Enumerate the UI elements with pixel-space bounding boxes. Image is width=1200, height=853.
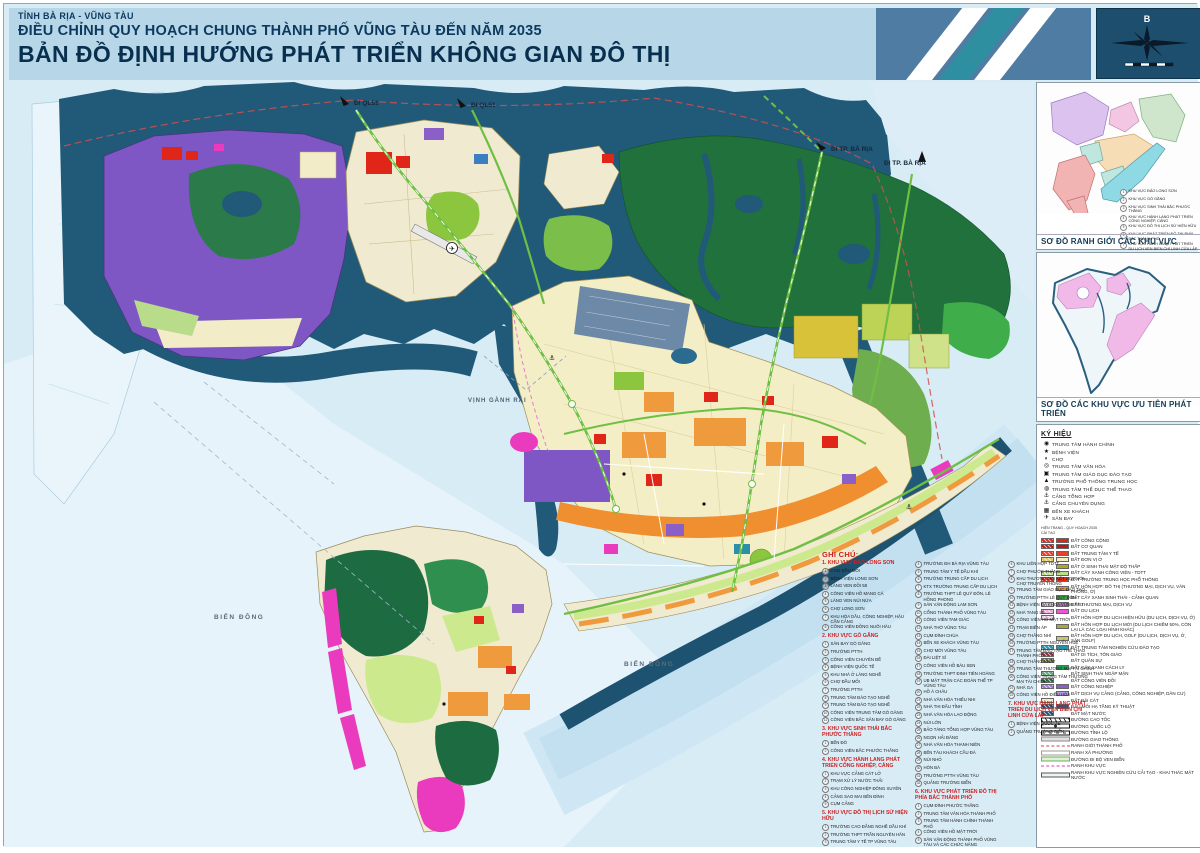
notes-item: 17 TRUNG TÂM ĐÀO TẠO THỂ THAO THÀNH PHỐ: [1008, 648, 1095, 658]
high-school-icon: ▲: [1041, 478, 1052, 485]
note-label: CHỢ MỚI VŨNG TÀU: [924, 648, 967, 653]
note-number: 15: [915, 648, 922, 655]
notes-section: 3. KHU VỰC SINH THÁI BẮC PHƯỚC THẮNG 1 B…: [822, 727, 909, 755]
note-number: 10: [822, 710, 829, 717]
note-label: TRƯỜNG CAO ĐẲNG NGHỀ DẦU KHÍ: [831, 824, 907, 829]
notes-item: 15 CHỢ THẮNG NHÌ: [1008, 633, 1095, 640]
notes-item-list: 1 BẾN ĐÒ 2 CÔNG VIÊN BẮC PHƯỚC THẮNG: [822, 740, 909, 755]
note-number: 18: [915, 671, 922, 678]
note-label: KHU VỰC CẢNG CÁT LỞ: [831, 771, 882, 776]
note-label: TRẠM XỬ LÝ NƯỚC THẢI: [831, 778, 883, 783]
notes-item: 22 CÔNG VIÊN HỒ ĐIỀU HÒA: [1008, 692, 1095, 699]
note-number: 10: [915, 610, 922, 617]
note-label: NHÀ THỜ VŨNG TÀU: [924, 625, 967, 630]
legend-number: 3: [1120, 205, 1127, 212]
notes-item: 2 TRẠM XỬ LÝ NƯỚC THẢI: [822, 778, 909, 785]
notes-section: 2. KHU VỰC GÒ GĂNG 1 SÂN BAY GÒ GĂNG 2 T…: [822, 634, 909, 724]
admin-center-icon: ◉: [1041, 441, 1052, 448]
note-label: BỆNH VIỆN QUỐC TẾ: [831, 664, 875, 669]
legend-col2: CẢI TẠO: [1041, 531, 1196, 536]
tip-tourism: [417, 777, 465, 832]
specialized-port-icon: ⚓: [1041, 500, 1052, 507]
note-label: HỒ Á CHÂU: [924, 689, 948, 694]
legend-column-headers: HIỆN TRẠNG - QUY HOẠCH 2035 CẢI TẠO: [1041, 526, 1196, 535]
note-number: 3: [822, 657, 829, 664]
notes-item: 1 CỤM ĐÌNH PHƯỚC THẮNG: [915, 803, 1002, 810]
note-number: 2: [822, 649, 829, 656]
note-label: CỤM CẢNG: [831, 801, 854, 806]
airport-icon: ✈: [449, 246, 455, 253]
symbol-item: ⚓ CẢNG TỔNG HỢP: [1041, 493, 1196, 500]
scale-bar: [1125, 63, 1173, 66]
note-number: 4: [822, 794, 829, 801]
note-label: NHÀ VĂN HÓA THANH NIÊN: [924, 742, 981, 747]
note-number: 2: [822, 748, 829, 755]
notes-item: 8 TRƯỜNG THPT LÊ QUÝ ĐÔN, LÊ HỒNG PHONG: [915, 591, 1002, 601]
note-label: CÔNG VIÊN HỒ BÀU SEN: [924, 663, 976, 668]
note-number: 8: [915, 591, 922, 598]
note-label: BẢO TÀNG TỔNG HỢP VŨNG TÀU: [924, 727, 994, 732]
note-number: 3: [822, 583, 829, 590]
notes-columns: 1. KHU VỰC ĐẢO LONG SƠN 1 CHỢ ĐẦU MỐI 2 …: [822, 561, 1002, 853]
note-label: NHÀ THI ĐẤU TỈNH: [924, 704, 963, 709]
notes-section-title: 4. KHU VỰC HÀNH LANG PHÁT TRIỂN CÔNG NGH…: [822, 758, 909, 770]
note-number: 5: [915, 837, 922, 844]
notes-item: 8 TRUNG TÂM ĐÀO TẠO NGHỀ: [822, 695, 909, 702]
legend-number: 1: [1120, 189, 1127, 196]
note-label: ĐÀI LIỆT SĨ: [924, 655, 947, 660]
inset-legend-item: 4 KHU VỰC HÀNH LANG PHÁT TRIỂN CÔNG NGHI…: [1120, 215, 1198, 224]
note-number: 4: [915, 829, 922, 836]
note-number: 4: [915, 561, 922, 568]
legend-item: ĐƯỜNG GIAO THÔNG: [1041, 737, 1196, 742]
note-number: 4: [822, 664, 829, 671]
note-number: 7: [915, 584, 922, 591]
note-number: 20: [1008, 674, 1015, 681]
note-label: BẾN ĐÒ: [831, 740, 847, 745]
legend-label: KHU VỰC SINH THÁI BẮC PHƯỚC THẮNG: [1129, 205, 1199, 214]
inset-priority-map: [1037, 253, 1200, 405]
note-number: 3: [822, 839, 829, 846]
notes-item: 2 CÔNG VIÊN BẮC PHƯỚC THẮNG: [822, 748, 909, 755]
legend-label: KHU VỰC GÒ GĂNG: [1129, 197, 1166, 201]
note-number: 6: [822, 606, 829, 613]
market-icon: ◐: [1041, 456, 1052, 463]
notes-item: 10 CỔNG THÀNH PHỐ VŨNG TÀU: [915, 610, 1002, 617]
notes-item: 11 CÔNG VIÊN BẮC SÂN BAY GÒ GĂNG: [822, 717, 909, 724]
notes-item: 20 HỒ Á CHÂU: [915, 689, 1002, 696]
note-number: 1: [822, 740, 829, 747]
notes-item: 3 KHU CÔNG NGHIỆP ĐÔNG XUYÊN: [822, 786, 909, 793]
road-label: ĐI TP. BÀ RỊA: [831, 144, 873, 153]
note-label: CHỢ THẮNG NHẤT: [1017, 659, 1056, 664]
notes-item: 18 CHỢ THẮNG NHẤT: [1008, 659, 1095, 666]
note-number: 3: [915, 818, 922, 825]
note-label: CÔNG VIÊN TRUNG TÂM GÒ GĂNG: [831, 710, 903, 715]
map-canvas: ✈ ⚓ ⚓ ĐI QL51 ĐI QL51 ĐI TP. BÀ RỊA ĐI T…: [3, 3, 1197, 846]
note-number: 22: [1008, 692, 1015, 699]
notes-item: 9 TRUNG TÂM ĐÀO TẠO NGHỀ: [822, 702, 909, 709]
symbol-label: TRUNG TÂM THỂ DỤC THỂ THAO: [1052, 487, 1132, 492]
mang-ca-lake: [222, 191, 262, 217]
note-number: 11: [915, 617, 922, 624]
symbol-item: ▣ TRUNG TÂM GIÁO DỤC ĐÀO TẠO: [1041, 471, 1196, 478]
port-icon: ⚓: [549, 355, 555, 362]
note-number: 13: [915, 633, 922, 640]
plan-title: ĐIỀU CHỈNH QUY HOẠCH CHUNG THÀNH PHỐ VŨN…: [18, 23, 878, 39]
note-label: CẢNG SAO MAI BẾN ĐÌNH: [831, 794, 884, 799]
note-label: SÂN VẬN ĐỘNG LAM SƠN: [924, 602, 978, 607]
legend-item: ĐẤT CÔNG CỘNG: [1041, 538, 1196, 543]
bus-station-icon: ▦: [1041, 508, 1052, 515]
note-label: TRUNG TÂM Y TẾ DẦU KHÍ: [924, 569, 979, 574]
note-label: CÔNG VIÊN TRUNG TÂM THƯƠNG MẠI TÀI CHÍNH: [1017, 674, 1096, 684]
symbol-label: TRUNG TÂM HÀNH CHÍNH: [1052, 442, 1115, 447]
notes-item: 1 BỆNH VIỆN QUỐC TẾ: [1008, 721, 1095, 728]
notes-section: 4. KHU VỰC HÀNH LANG PHÁT TRIỂN CÔNG NGH…: [822, 758, 909, 808]
swatch-existing: [1041, 544, 1054, 549]
notes-item: 7 CHỢ PHƯỚC THẮNG: [1008, 569, 1095, 576]
note-number: 10: [1008, 595, 1015, 602]
notes-item: 4 CÔNG VIÊN HỒ MẶT TRỜI: [915, 829, 1002, 836]
hospital-icon: ★: [1041, 449, 1052, 456]
notes-item: 9 TRUNG TÂM GIÁO DỤC ĐÀO TẠO: [1008, 587, 1095, 594]
note-number: 22: [915, 704, 922, 711]
legend-item: ĐẤT CƠ QUAN: [1041, 544, 1196, 549]
note-label: KHU NHÀ Ở LÀNG NGHỀ: [831, 672, 882, 677]
note-number: 9: [822, 702, 829, 709]
notes-section-title: 3. KHU VỰC SINH THÁI BẮC PHƯỚC THẮNG: [822, 727, 909, 739]
notes-item: 1 BẾN ĐÒ: [822, 740, 909, 747]
note-label: CÔNG VIÊN HỒ ĐIỀU HÒA: [1017, 692, 1071, 697]
note-label: HÒN BÀ: [924, 765, 940, 770]
notes-item: 6 CHỢ LONG SƠN: [822, 606, 909, 613]
road-label: ĐI QL51: [354, 100, 379, 107]
notes-title: GHI CHÚ:: [822, 550, 1002, 559]
note-number: 4: [822, 591, 829, 598]
culture-center-icon: ◎: [1041, 463, 1052, 470]
note-number: 7: [1008, 569, 1015, 576]
legend-item: RANH GIỚI THÀNH PHỐ: [1041, 743, 1196, 748]
general-port-icon: ⚓: [1041, 493, 1052, 500]
notes-item: 5 KHU NHÀ Ở LÀNG NGHỀ: [822, 672, 909, 679]
note-number: 8: [822, 624, 829, 631]
note-number: 2: [822, 778, 829, 785]
notes-item: 3 LÀNG VEN ĐỒI 58: [822, 583, 909, 590]
note-number: 17: [1008, 648, 1015, 655]
line-swatch: [1041, 765, 1070, 766]
planning-map-poster: { "header": { "line1": "TỈNH BÀ RỊA - VŨ…: [0, 0, 1200, 849]
note-label: LÀNG VEN NÚI NỨA: [831, 598, 872, 603]
note-number: 5: [822, 801, 829, 808]
note-label: SÂN BAY GÒ GĂNG: [831, 641, 871, 646]
note-number: 2: [1008, 729, 1015, 736]
note-number: 2: [915, 811, 922, 818]
note-number: 11: [1008, 602, 1015, 609]
legend-item: ĐƯỜNG ĐI BỘ VEN BIỂN: [1041, 757, 1196, 762]
note-label: CHỢ THẮNG NHÌ: [1017, 633, 1052, 638]
inset-legend-item: 2 KHU VỰC GÒ GĂNG: [1120, 197, 1198, 204]
note-label: TRUNG TÂM THƯƠNG MẠI TÀI CHÍNH: [1017, 666, 1095, 671]
notes-item: 15 CHỢ MỚI VŨNG TÀU: [915, 648, 1002, 655]
note-number: 8: [822, 695, 829, 702]
note-number: 20: [915, 689, 922, 696]
port-icon: ⚓: [906, 504, 912, 511]
note-label: KTX TRƯỜNG TRUNG CẤP DU LỊCH: [924, 584, 998, 589]
notes-item: 17 CÔNG VIÊN HỒ BÀU SEN: [915, 663, 1002, 670]
notes-item: 12 NHÀ TANG LỄ: [1008, 610, 1095, 617]
notes-item: 1 TRƯỜNG CAO ĐẲNG NGHỀ DẦU KHÍ: [822, 824, 909, 831]
notes-section: 7. KHU VỰC HÀNH LANG PHÁT TRIỂN DU LỊCH …: [1008, 702, 1095, 736]
legend-number: 4: [1120, 215, 1127, 222]
note-label: CÔNG VIÊN BẮC SÂN BAY GÒ GĂNG: [831, 717, 906, 722]
note-number: 6: [1008, 561, 1015, 568]
note-label: TRUNG TÂM Y TẾ TP VŨNG TÀU: [831, 839, 897, 844]
symbol-item: ◐ CHỢ: [1041, 456, 1196, 463]
note-number: 5: [822, 672, 829, 679]
line-swatch: [1041, 750, 1070, 755]
sports-center-icon: ◍: [1041, 486, 1052, 493]
note-label: TRƯỜNG PTTH: [831, 649, 863, 654]
note-number: 19: [915, 678, 922, 685]
province-title: TỈNH BÀ RỊA - VŨNG TÀU: [18, 11, 878, 21]
note-label: BẾN TÀU KHÁCH CẦU ĐÁ: [924, 750, 976, 755]
swatch-planned: [1056, 538, 1069, 543]
bay-label: VỊNH GÀNH RÁI: [468, 397, 527, 404]
note-number: 32: [915, 780, 922, 787]
note-label: NHÀ VĂN HÓA THIẾU NHI: [924, 697, 976, 702]
note-number: 28: [915, 750, 922, 757]
note-label: TRẠM BIẾN ÁP: [1017, 625, 1047, 630]
notes-section-title: 7. KHU VỰC HÀNH LANG PHÁT TRIỂN DU LỊCH …: [1008, 702, 1095, 720]
notes-item: 12 NHÀ THỜ VŨNG TÀU: [915, 625, 1002, 632]
notes-item: 32 QUẢNG TRƯỜNG BIỂN: [915, 780, 1002, 787]
note-label: BỆNH VIỆN LONG SƠN: [831, 576, 878, 581]
note-label: KHU THƯƠNG MẠI KẾT HỢP VỚI CHỢ TRUYỀN TH…: [1017, 576, 1096, 586]
note-number: 1: [1008, 721, 1015, 728]
notes-item: 2 TRUNG TÂM VĂN HÓA THÀNH PHỐ: [915, 811, 1002, 818]
symbol-item: ⚓ CẢNG CHUYÊN DỤNG: [1041, 500, 1196, 507]
notes-section-title: 5. KHU VỰC ĐÔ THỊ LỊCH SỬ HIỆN HỮU: [822, 811, 909, 823]
note-number: 19: [1008, 666, 1015, 673]
notes-item-list: 1 KHU VỰC CẢNG CÁT LỞ 2 TRẠM XỬ LÝ NƯỚC …: [822, 771, 909, 808]
notes-item: 16 ĐÀI LIỆT SĨ: [915, 655, 1002, 662]
note-label: TRUNG TÂM ĐÀO TẠO NGHỀ: [831, 702, 891, 707]
notes-item: 2 QUẢNG TRƯỜNG BIỂN: [1008, 729, 1095, 736]
note-label: BỆNH VIỆN ĐA KHOA VŨNG TÀU: [1017, 602, 1084, 607]
note-label: CÔNG VIÊN HỒ MẶT TRỜI: [924, 829, 978, 834]
note-number: 9: [915, 602, 922, 609]
symbol-label: SÂN BAY: [1052, 516, 1073, 521]
legend-label: KHU VỰC ĐÔ THỊ LỊCH SỬ HIỆN HỮU: [1129, 224, 1197, 228]
notes-section-title: 1. KHU VỰC ĐẢO LONG SƠN: [822, 561, 909, 567]
symbol-label: BẾN XE KHÁCH: [1052, 509, 1089, 514]
notes-item: 7 KHU HÓA DẦU, CÔNG NGHIỆP, HẬU CẦN CẢNG: [822, 614, 909, 624]
notes-item: 30 HÒN BÀ: [915, 765, 1002, 772]
inset-legend-item: 3 KHU VỰC SINH THÁI BẮC PHƯỚC THẮNG: [1120, 205, 1198, 214]
note-label: BẾN XE KHÁCH VŨNG TÀU: [924, 640, 979, 645]
notes-item: 3 TRUNG TÂM HÀNH CHÍNH THÀNH PHỐ: [915, 818, 1002, 828]
symbol-label: CHỢ: [1052, 457, 1063, 462]
legend-label: ĐƯỜNG ĐI BỘ VEN BIỂN: [1071, 757, 1124, 762]
notes-item: 5 SÂN VẬN ĐỘNG THÀNH PHỐ VŨNG TÀU VÀ CÁC…: [915, 837, 1002, 847]
map-notes: GHI CHÚ: 1. KHU VỰC ĐẢO LONG SƠN 1 CHỢ Đ…: [822, 550, 1002, 853]
notes-item: 4 CẢNG SAO MAI BẾN ĐÌNH: [822, 794, 909, 801]
symbol-item: ◍ TRUNG TÂM THỂ DỤC THỂ THAO: [1041, 485, 1196, 492]
notes-section: 1. KHU VỰC ĐẢO LONG SƠN 1 CHỢ ĐẦU MỐI 2 …: [822, 561, 909, 631]
note-label: TRUNG TÂM HÀNH CHÍNH THÀNH PHỐ: [924, 818, 1003, 828]
sao-mai-tourism: [510, 432, 538, 452]
notes-section-title: 2. KHU VỰC GÒ GĂNG: [822, 634, 909, 640]
symbol-label: CẢNG TỔNG HỢP: [1052, 494, 1095, 499]
note-label: QUẢNG TRƯỜNG BIỂN: [1017, 729, 1065, 734]
legend-label: ĐẤT CÔNG CỘNG: [1071, 538, 1109, 543]
note-number: 6: [822, 679, 829, 686]
note-label: KHU LIÊN HỢP TDTT: [1017, 561, 1060, 566]
symbol-item: ◉ TRUNG TÂM HÀNH CHÍNH: [1041, 441, 1196, 448]
note-label: CHỢ LONG SƠN: [831, 606, 865, 611]
north-label: B: [1144, 14, 1151, 24]
line-swatch: [1041, 737, 1070, 742]
note-label: TRƯỜNG PTTH VŨNG TÀU: [924, 773, 979, 778]
note-label: CÔNG VIÊN ĐỒNG NUÔI HÀU: [831, 624, 891, 629]
note-number: 17: [915, 663, 922, 670]
symbol-label: TRUNG TÂM GIÁO DỤC ĐÀO TẠO: [1052, 472, 1132, 477]
inset-legend-item: 5 KHU VỰC ĐÔ THỊ LỊCH SỬ HIỆN HỮU: [1120, 224, 1198, 231]
line-swatch: [1041, 746, 1070, 747]
note-number: 16: [915, 655, 922, 662]
note-number: 23: [915, 712, 922, 719]
note-label: CHỢ ĐẦU MỐI: [831, 679, 860, 684]
sao-mai-port: [537, 451, 561, 467]
legend-label: ĐƯỜNG GIAO THÔNG: [1071, 737, 1119, 742]
notes-item: 7 KTX TRƯỜNG TRUNG CẤP DU LỊCH: [915, 584, 1002, 591]
note-label: CỤM ĐÌNH CHÙA: [924, 633, 959, 638]
notes-item: 10 CÔNG VIÊN TRUNG TÂM GÒ GĂNG: [822, 710, 909, 717]
note-label: TRƯỜNG ĐH BÀ RỊA VŨNG TÀU: [924, 561, 989, 566]
note-label: CÔNG VIÊN HỒ MANG CÁ: [831, 591, 884, 596]
sea-label: BIỂN ĐÔNG: [624, 659, 674, 668]
legend-label: RANH XÃ PHƯỜNG: [1071, 750, 1113, 755]
notes-item: 26 NGỌN HẢI ĐĂNG: [915, 735, 1002, 742]
note-label: KHU HÓA DẦU, CÔNG NGHIỆP, HẬU CẦN CẢNG: [831, 614, 910, 624]
notes-item: 16 TRƯỜNG PTTH NGUYỄN HUỆ: [1008, 640, 1095, 647]
note-label: TRƯỜNG TRUNG CẤP DU LỊCH: [924, 576, 988, 581]
note-number: 11: [822, 717, 829, 724]
note-number: 1: [822, 824, 829, 831]
notes-item: 4 BỆNH VIỆN QUỐC TẾ: [822, 664, 909, 671]
note-number: 3: [822, 786, 829, 793]
inset-legend-item: 1 KHU VỰC ĐẢO LONG SƠN: [1120, 189, 1198, 196]
note-number: 13: [1008, 617, 1015, 624]
legend-label: KHU VỰC ĐẢO LONG SƠN: [1129, 189, 1177, 193]
note-number: 1: [822, 568, 829, 575]
notes-item: 24 NÚI LỚN: [915, 720, 1002, 727]
note-label: TRUNG TÂM ĐÀO TẠO NGHỀ: [831, 695, 891, 700]
note-label: TRUNG TÂM ĐÀO TẠO THỂ THAO THÀNH PHỐ: [1017, 648, 1096, 658]
notes-item: 14 BẾN XE KHÁCH VŨNG TÀU: [915, 640, 1002, 647]
note-label: TRƯỜNG THPT ĐINH TIÊN HOÀNG: [924, 671, 995, 676]
note-label: CÔNG VIÊN TAM GIÁC: [924, 617, 970, 622]
notes-item: 7 TRƯỜNG PTTH: [822, 687, 909, 694]
page-title: BẢN ĐỒ ĐỊNH HƯỚNG PHÁT TRIỂN KHÔNG GIAN …: [18, 41, 878, 68]
notes-item: 2 BỆNH VIỆN LONG SƠN: [822, 576, 909, 583]
swatch-planned: [1056, 551, 1069, 556]
note-number: 7: [822, 614, 829, 621]
note-number: 5: [915, 569, 922, 576]
note-number: 8: [1008, 576, 1015, 583]
note-label: SÂN VẬN ĐỘNG THÀNH PHỐ VŨNG TÀU VÀ CÁC C…: [924, 837, 1003, 847]
legend-label: RANH GIỚI THÀNH PHỐ: [1071, 743, 1123, 748]
symbol-label: CẢNG CHUYÊN DỤNG: [1052, 501, 1105, 506]
swatch-existing: [1041, 538, 1054, 543]
line-swatch: [1041, 772, 1070, 777]
note-number: 9: [1008, 587, 1015, 594]
symbol-item: ✈ SÂN BAY: [1041, 515, 1196, 522]
road-label: ĐI QL51: [471, 102, 496, 109]
notes-item: 11 BỆNH VIỆN ĐA KHOA VŨNG TÀU: [1008, 602, 1095, 609]
note-label: TRUNG TÂM GIÁO DỤC ĐÀO TẠO: [1017, 587, 1085, 592]
note-label: CHỢ ĐẦU MỐI: [831, 568, 860, 573]
swatch-existing: [1041, 551, 1054, 556]
note-number: 14: [915, 640, 922, 647]
note-label: NGỌN HẢI ĐĂNG: [924, 735, 959, 740]
notes-item: 6 KHU LIÊN HỢP TDTT: [1008, 561, 1095, 568]
notes-item: 21 NHÀ VĂN HÓA THIẾU NHI: [915, 697, 1002, 704]
note-label: KHU CÔNG NGHIỆP ĐÔNG XUYÊN: [831, 786, 902, 791]
line-swatch: [1041, 757, 1070, 762]
notes-item: 19 UB MẶT TRẬN CÁC ĐOÀN THỂ TP VŨNG TÀU: [915, 678, 1002, 688]
long-son-island: [104, 130, 352, 360]
note-label: TRƯỜNG PTTH LÊ QUÝ ĐÔN: [1017, 595, 1077, 600]
symbol-item: ▲ TRƯỜNG PHỔ THÔNG TRUNG HỌC: [1041, 478, 1196, 485]
symbol-item: ◎ TRUNG TÂM VĂN HÓA: [1041, 463, 1196, 470]
note-number: 24: [915, 720, 922, 727]
compass-rose-icon: [1111, 25, 1189, 61]
notes-item: 1 SÂN BAY GÒ GĂNG: [822, 641, 909, 648]
notes-item: 22 NHÀ THI ĐẤU TỈNH: [915, 704, 1002, 711]
notes-item: 21 NHÀ GA: [1008, 685, 1095, 692]
notes-item: 1 CHỢ ĐẦU MỐI: [822, 568, 909, 575]
symbols-title: KÝ HIỆU: [1041, 431, 1196, 438]
notes-item: 25 BẢO TÀNG TỔNG HỢP VŨNG TÀU: [915, 727, 1002, 734]
notes-item: 29 NÚI NHỎ: [915, 757, 1002, 764]
note-label: CÔNG VIÊN HỒ MẶT TRỜI: [1017, 617, 1071, 622]
notes-item: 8 KHU THƯƠNG MẠI KẾT HỢP VỚI CHỢ TRUYỀN …: [1008, 576, 1095, 586]
note-number: 15: [1008, 633, 1015, 640]
note-number: 26: [915, 735, 922, 742]
inset-boundaries-caption: SƠ ĐỒ RANH GIỚI CÁC KHU VỰC: [1037, 234, 1200, 249]
notes-item: 23 NHÀ VĂN HÓA LAO ĐỘNG: [915, 712, 1002, 719]
symbol-label: BỆNH VIỆN: [1052, 450, 1079, 455]
note-number: 21: [1008, 685, 1015, 692]
legend-item: RANH XÃ PHƯỜNG: [1041, 750, 1196, 755]
note-number: 31: [915, 773, 922, 780]
note-label: CỤM ĐÌNH PHƯỚC THẮNG: [924, 803, 979, 808]
legend-label: RANH KHU VỰC: [1071, 763, 1106, 768]
note-number: 6: [915, 576, 922, 583]
note-label: NHÀ VĂN HÓA LAO ĐỘNG: [924, 712, 977, 717]
notes-item: 1 KHU VỰC CẢNG CÁT LỞ: [822, 771, 909, 778]
symbol-item: ▦ BẾN XE KHÁCH: [1041, 508, 1196, 515]
note-number: 5: [822, 598, 829, 605]
note-label: NHÀ GA: [1017, 685, 1033, 690]
note-number: 12: [1008, 610, 1015, 617]
note-number: 14: [1008, 625, 1015, 632]
note-label: TRƯỜNG PTTH: [831, 687, 863, 692]
note-number: 7: [822, 687, 829, 694]
notes-item-list: 1 BỆNH VIỆN QUỐC TẾ 2 QUẢNG TRƯỜNG BIỂN: [1008, 721, 1095, 736]
